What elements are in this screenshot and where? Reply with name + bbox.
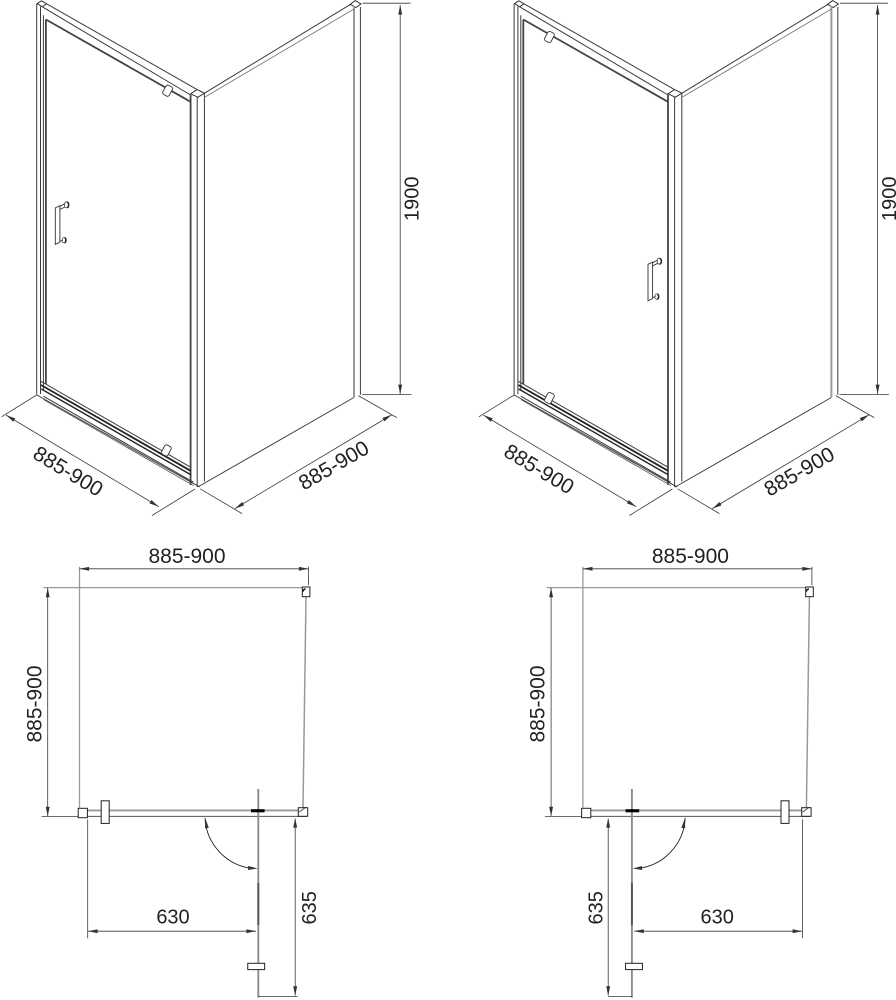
svg-text:630: 630 (156, 906, 189, 928)
svg-text:885-900: 885-900 (652, 545, 729, 568)
svg-text:635: 635 (299, 891, 321, 924)
svg-text:635: 635 (586, 891, 608, 924)
svg-text:885-900: 885-900 (527, 665, 550, 742)
svg-text:1900: 1900 (402, 176, 424, 221)
svg-text:885-900: 885-900 (23, 665, 46, 742)
svg-text:630: 630 (701, 906, 734, 928)
svg-text:885-900: 885-900 (148, 545, 225, 568)
svg-text:1900: 1900 (879, 176, 896, 221)
